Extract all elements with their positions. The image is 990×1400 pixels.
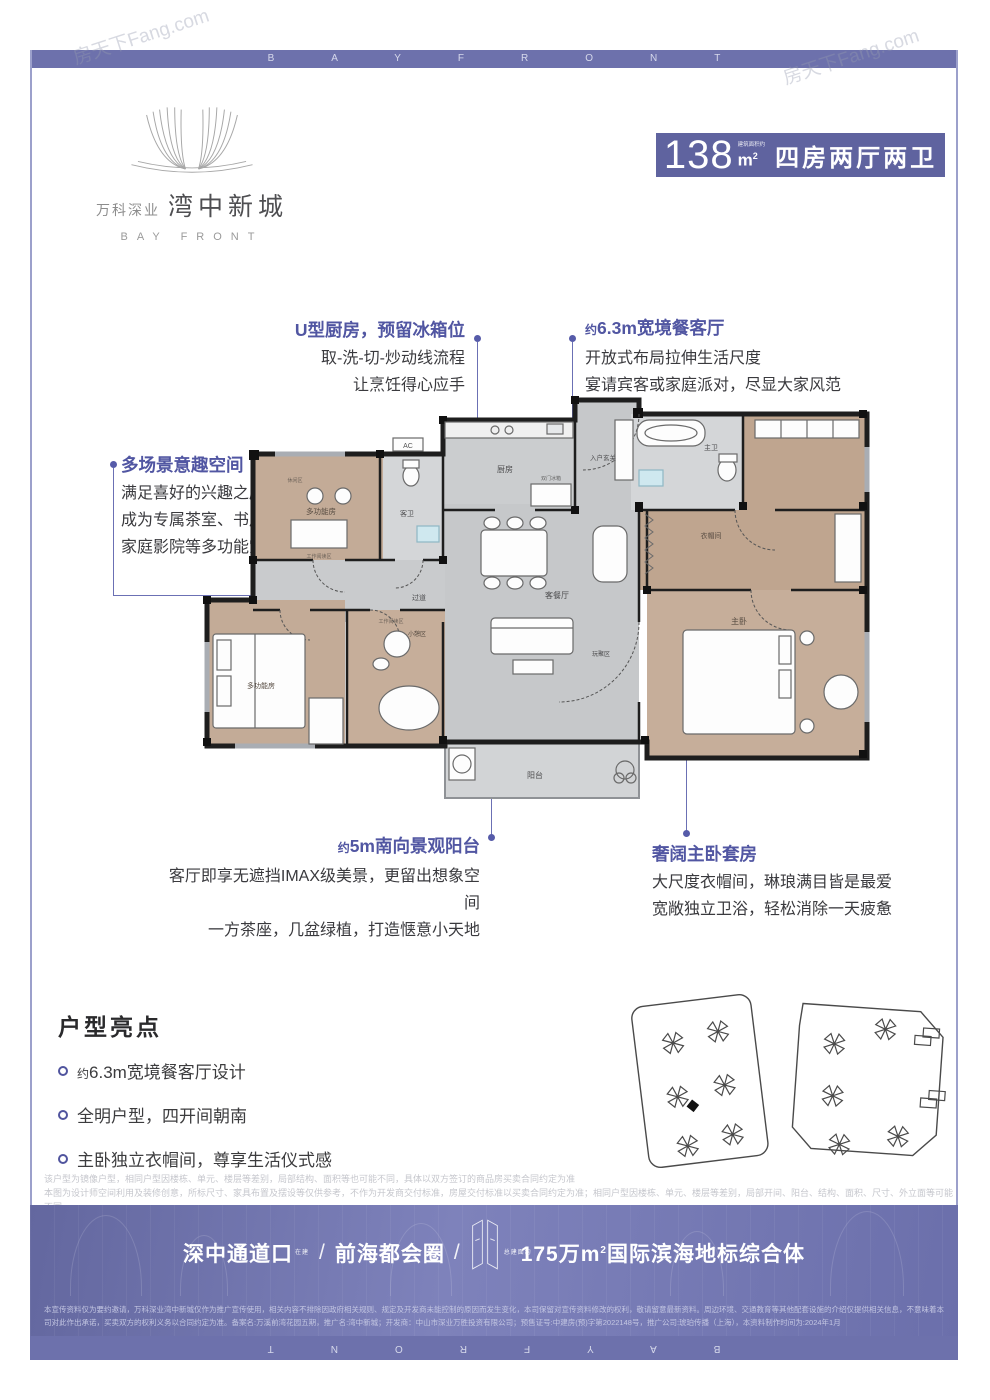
- room-label-closet: 衣帽间: [701, 531, 722, 540]
- bullet-ring-icon: [58, 1154, 68, 1164]
- callout-balcony-line2: 一方茶座，几盆绿植，打造惬意小天地: [160, 917, 480, 944]
- highlight-text: 全明户型，四开间朝南: [77, 1107, 247, 1126]
- banner-segment1: 深中通道口: [183, 1238, 293, 1268]
- room-label-reading-nap: 工作阅读区: [378, 618, 403, 625]
- closet-floor: [639, 510, 867, 590]
- callout-master-line1: 大尺度衣帽间，琳琅满目皆是最爱: [652, 869, 962, 896]
- room-label-kitchen: 厨房: [497, 464, 513, 474]
- leader-dot: [683, 830, 690, 837]
- gate-door-icon: [470, 1215, 500, 1275]
- room-label-leisure: 休闲区: [287, 477, 302, 484]
- badge-unit-sup: 2: [753, 151, 758, 161]
- highlight-item: 约6.3m宽境餐客厅设计: [58, 1058, 246, 1083]
- badge-unit-text: m: [738, 150, 753, 169]
- bullet-ring-icon: [58, 1066, 68, 1076]
- callout-dining-line1: 开放式布局拉伸生活尺度: [585, 345, 925, 372]
- bottom-brand-letters: BAYFRONT: [30, 1336, 958, 1360]
- room-label-ac: AC: [403, 443, 413, 450]
- highlight-text: 主卧独立衣帽间，尊享生活仪式感: [77, 1151, 332, 1170]
- disclaimer-line1: 该户型为镜像户型，相同户型因楼栋、单元、楼层等差别，局部结构、面积等也可能不同，…: [44, 1172, 956, 1186]
- banner-segment3: 国际滨海地标综合体: [607, 1238, 805, 1268]
- banner-headline: 深中通道口在建/前海都会圈/ 总建面约175万m2国际滨海地标综合体: [30, 1231, 958, 1275]
- top-brand-letters: BAYFRONT: [30, 50, 958, 68]
- callout-balcony-prefix: 约: [338, 841, 350, 855]
- callout-kitchen-line1: 取-洗-切-炒动线流程: [215, 345, 465, 372]
- callout-kitchen: U型厨房，预留冰箱位 取-洗-切-炒动线流程 让烹饪得心应手: [215, 320, 465, 399]
- logo-subtitle-text: BAY FRONT: [92, 231, 292, 243]
- callout-balcony-title: 约5m南向景观阳台: [160, 836, 480, 858]
- room-label-master: 主卧: [731, 616, 747, 626]
- banner-segment2: 前海都会圈: [335, 1238, 445, 1268]
- highlight-item: 主卧独立衣帽间，尊享生活仪式感: [58, 1146, 332, 1171]
- highlight-prefix: 约: [77, 1067, 89, 1081]
- area-badge: 138 建筑面积约 m2 四房两厅两卫: [656, 133, 945, 177]
- frame-left-line: [30, 50, 32, 1358]
- banner-area-value: 175万m2: [521, 1238, 607, 1268]
- callout-balcony-line1: 客厅即享无遮挡IMAX级美景，更留出想象空间: [160, 863, 480, 917]
- leader-dot: [569, 335, 576, 342]
- logo-brand-text: 万科深业: [96, 202, 160, 218]
- room-label-guest-bath: 客卫: [400, 509, 414, 518]
- poster-page: BAYFRONT 房天下Fang.com 房天下Fang.com 房天下Fang…: [0, 0, 990, 1400]
- badge-area-number: 138: [664, 135, 734, 175]
- frame-right-line: [956, 50, 958, 1358]
- banner-note1: 在建: [295, 1250, 308, 1257]
- room-label-master-bath: 主卫: [704, 443, 718, 452]
- logo-name-text: 湾中新城: [168, 193, 288, 221]
- room-label-multi-top: 多功能房: [306, 506, 336, 516]
- room-label-living: 客餐厅: [545, 590, 569, 600]
- bullet-ring-icon: [58, 1110, 68, 1120]
- room-label-balcony: 阳台: [527, 770, 543, 780]
- site-plot-right: [791, 1003, 951, 1161]
- leader-dot: [474, 335, 481, 342]
- callout-dining: 约6.3m宽境餐客厅 开放式布局拉伸生活尺度 宴请宾客或家庭派对，尽显大家风范: [585, 318, 925, 399]
- callout-master-title: 奢阔主卧套房: [652, 844, 962, 864]
- callout-dining-title: 约6.3m宽境餐客厅: [585, 318, 925, 340]
- top-brand-strip: BAYFRONT: [30, 50, 958, 68]
- room-label-corridor: 过道: [412, 593, 426, 602]
- site-plot-left: [630, 993, 769, 1168]
- callout-master: 奢阔主卧套房 大尺度衣帽间，琳琅满目皆是最爱 宽敞独立卫浴，轻松消除一天疲惫: [652, 844, 962, 923]
- room-label-entry: 入户玄关: [590, 453, 617, 462]
- badge-layout-text: 四房两厅两卫: [775, 138, 937, 173]
- room-label-fridge: 双门冰箱: [541, 475, 561, 482]
- callout-master-line2: 宽敞独立卫浴，轻松消除一天疲惫: [652, 896, 962, 923]
- leader-dot: [110, 461, 117, 468]
- highlight-text: 6.3m宽境餐客厅设计: [89, 1063, 246, 1082]
- callout-kitchen-title: U型厨房，预留冰箱位: [215, 320, 465, 340]
- site-plan-diagrams: [620, 982, 956, 1172]
- leader-dot: [488, 834, 495, 841]
- room-label-reading-top: 工作阅读区: [306, 553, 331, 560]
- room-label-play: 玩聚区: [592, 651, 610, 658]
- callout-balcony-title-text: 5m南向景观阳台: [350, 836, 480, 856]
- banner-separator: /: [454, 1241, 461, 1265]
- legal-text: 本宣传资料仅为要约邀请，万科深业湾中新城仅作为推广宣传使用，相关内容不排除因政府…: [44, 1304, 944, 1329]
- callout-dining-prefix: 约: [585, 323, 597, 337]
- room-label-nap: 小憩区: [408, 630, 426, 638]
- bottom-banner: 深中通道口在建/前海都会圈/ 总建面约175万m2国际滨海地标综合体 本宣传资料…: [30, 1205, 958, 1336]
- highlight-item: 全明户型，四开间朝南: [58, 1102, 247, 1127]
- callout-balcony: 约5m南向景观阳台 客厅即享无遮挡IMAX级美景，更留出想象空间 一方茶座，几盆…: [160, 836, 480, 944]
- logo: 万科深业湾中新城 BAY FRONT: [92, 102, 292, 243]
- badge-unit-note: 建筑面积约: [738, 142, 766, 148]
- banner-area-note: 总建面约: [504, 1250, 519, 1257]
- banner-separator: /: [319, 1241, 326, 1265]
- badge-unit: 建筑面积约 m2: [738, 142, 766, 169]
- floor-plan: 厨房 双门冰箱 入户玄关 客卫 多功能房 工作阅读区 休闲区 过道 客餐厅 玩聚…: [195, 392, 875, 812]
- highlights-heading: 户型亮点: [58, 1008, 162, 1042]
- leader-line: [113, 468, 114, 596]
- room-label-multi-bottom: 多功能房: [247, 681, 275, 690]
- bottom-brand-strip: BAYFRONT: [30, 1336, 958, 1360]
- callout-dining-title-text: 6.3m宽境餐客厅: [597, 318, 724, 338]
- logo-building-icon: [126, 102, 258, 182]
